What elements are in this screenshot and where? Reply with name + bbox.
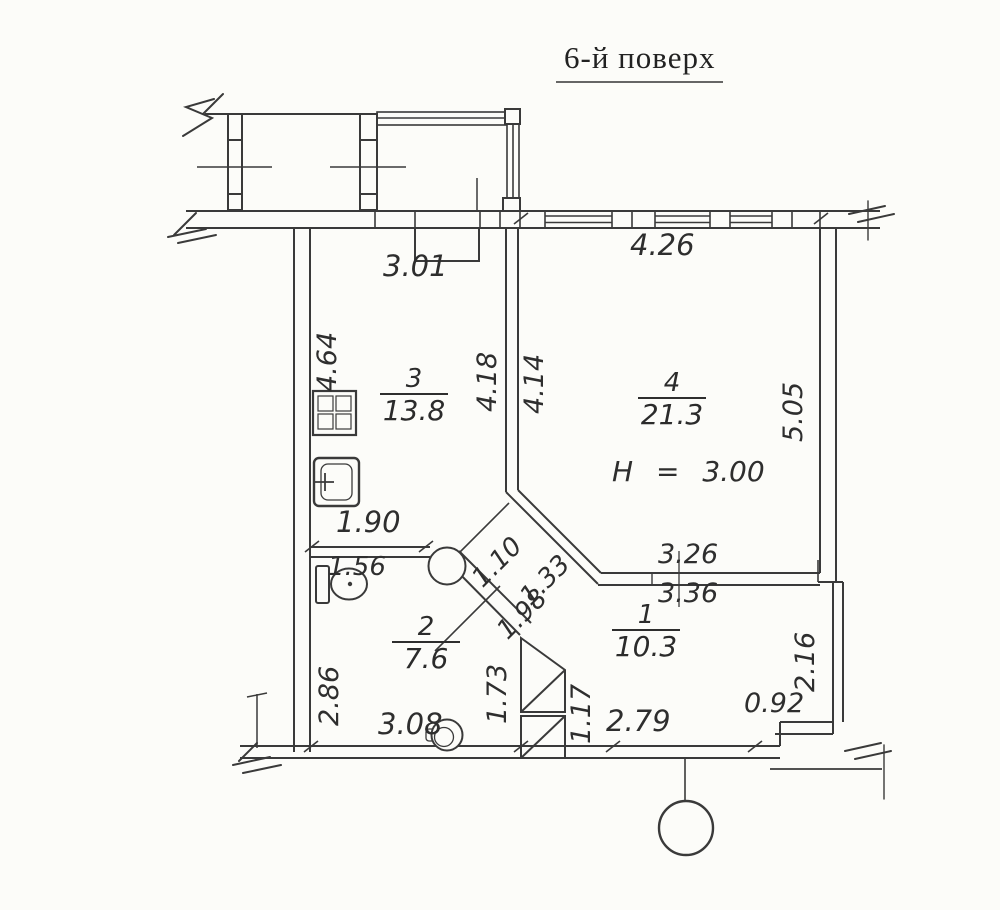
dim-4-14: 4.14 bbox=[521, 354, 549, 414]
room-4-label: 4 21.3 bbox=[638, 370, 706, 430]
ceiling-height-note: H = 3.00 bbox=[612, 455, 765, 488]
right-walls bbox=[818, 228, 843, 734]
room-4-area: 21.3 bbox=[638, 397, 706, 430]
windows bbox=[545, 216, 772, 223]
dim-4-26: 4.26 bbox=[630, 231, 695, 259]
dim-5-05: 5.05 bbox=[780, 382, 808, 442]
room-2-number: 2 bbox=[392, 614, 460, 641]
dim-1-90: 1.90 bbox=[336, 508, 401, 536]
dim-3-26: 3.26 bbox=[658, 541, 718, 569]
dim-2-79: 2.79 bbox=[606, 707, 671, 735]
dim-0-92: 0.92 bbox=[744, 690, 804, 718]
page-title: 6-й поверх bbox=[556, 40, 723, 83]
room-1-label: 1 10.3 bbox=[612, 602, 680, 662]
floor-plan-linework bbox=[0, 0, 1000, 910]
room-2-label: 2 7.6 bbox=[392, 614, 460, 674]
room-4-number: 4 bbox=[638, 370, 706, 397]
dim-4-18: 4.18 bbox=[474, 352, 502, 412]
room-3-number: 3 bbox=[380, 366, 448, 393]
dim-1-17: 1.17 bbox=[568, 684, 596, 744]
floor-plan-page: 6-й поверх 3.01 4.26 1.90 1.56 3.26 3.36… bbox=[0, 0, 1000, 910]
room-3-label: 3 13.8 bbox=[380, 366, 448, 426]
vent-shaft bbox=[521, 638, 565, 758]
stove-icon bbox=[313, 391, 356, 435]
left-exterior-wall bbox=[247, 228, 310, 752]
dim-1-73: 1.73 bbox=[484, 664, 512, 724]
room-2-area: 7.6 bbox=[392, 641, 460, 674]
wall-mullions bbox=[375, 211, 820, 228]
dim-2-86: 2.86 bbox=[316, 666, 344, 726]
dim-3-08: 3.08 bbox=[378, 710, 443, 738]
room-3-area: 13.8 bbox=[380, 393, 448, 426]
balcony-left bbox=[197, 114, 406, 210]
sink-icon bbox=[313, 458, 359, 506]
dim-1-56: 1.56 bbox=[328, 553, 386, 581]
room-1-number: 1 bbox=[612, 602, 680, 629]
top-exterior-wall bbox=[186, 211, 880, 228]
callout-circle bbox=[659, 801, 713, 855]
break-top-right bbox=[849, 206, 894, 222]
dim-2-16: 2.16 bbox=[792, 632, 820, 692]
dim-4-64: 4.64 bbox=[314, 332, 342, 392]
dim-3-01: 3.01 bbox=[383, 252, 448, 280]
balcony-right-glazing bbox=[377, 109, 520, 211]
room-1-area: 10.3 bbox=[612, 629, 680, 662]
washbasin-icon bbox=[429, 548, 466, 585]
